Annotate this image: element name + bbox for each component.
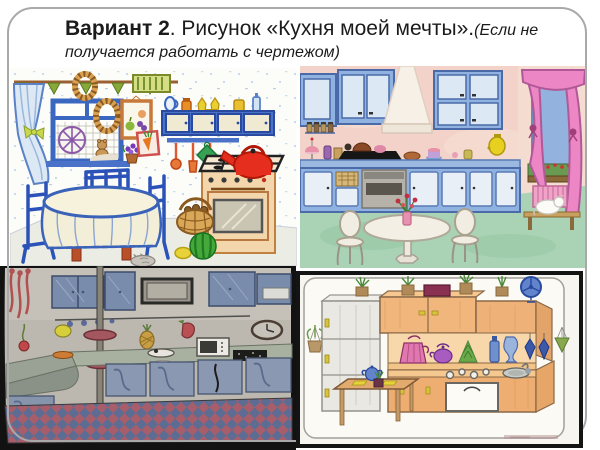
carrot-picture bbox=[137, 130, 159, 156]
slide-title: Вариант 2. Рисунок «Кухня моей мечты».(Е… bbox=[65, 16, 570, 62]
title-italic-start: (Если не bbox=[474, 22, 538, 39]
title-line-1: Вариант 2. Рисунок «Кухня моей мечты».(Е… bbox=[65, 16, 570, 41]
microwave bbox=[197, 338, 229, 356]
title-line-2: получается работать с чертежом) bbox=[65, 43, 570, 62]
red-box bbox=[424, 285, 450, 296]
wall-mirror bbox=[142, 279, 192, 303]
title-regular: . Рисунок «Кухня моей мечты». bbox=[170, 17, 474, 40]
lower-cabinets bbox=[300, 168, 520, 212]
oven-door bbox=[446, 383, 498, 411]
title-bold: Вариант 2 bbox=[65, 17, 170, 40]
wall-clock bbox=[252, 321, 282, 339]
countertop bbox=[300, 160, 520, 168]
watermark bbox=[504, 435, 558, 439]
cooktop bbox=[338, 151, 402, 160]
refrigerator bbox=[322, 295, 388, 411]
orange-dish bbox=[53, 352, 73, 359]
presentation-slide: Вариант 2. Рисунок «Кухня моей мечты».(Е… bbox=[0, 0, 600, 450]
tile-floor bbox=[5, 398, 292, 443]
windowsill bbox=[46, 161, 130, 167]
wall-rack bbox=[133, 75, 170, 92]
kitchen-drawing-watercolor bbox=[300, 66, 585, 268]
kitchen-drawing-pencil bbox=[0, 266, 296, 450]
kitchen-drawing-colored-pencil bbox=[296, 271, 583, 448]
kitchen-drawing-felt-pen bbox=[10, 68, 297, 266]
table-plant bbox=[374, 371, 383, 387]
fan-wheel bbox=[59, 127, 85, 153]
wall-cupboard bbox=[162, 111, 274, 135]
